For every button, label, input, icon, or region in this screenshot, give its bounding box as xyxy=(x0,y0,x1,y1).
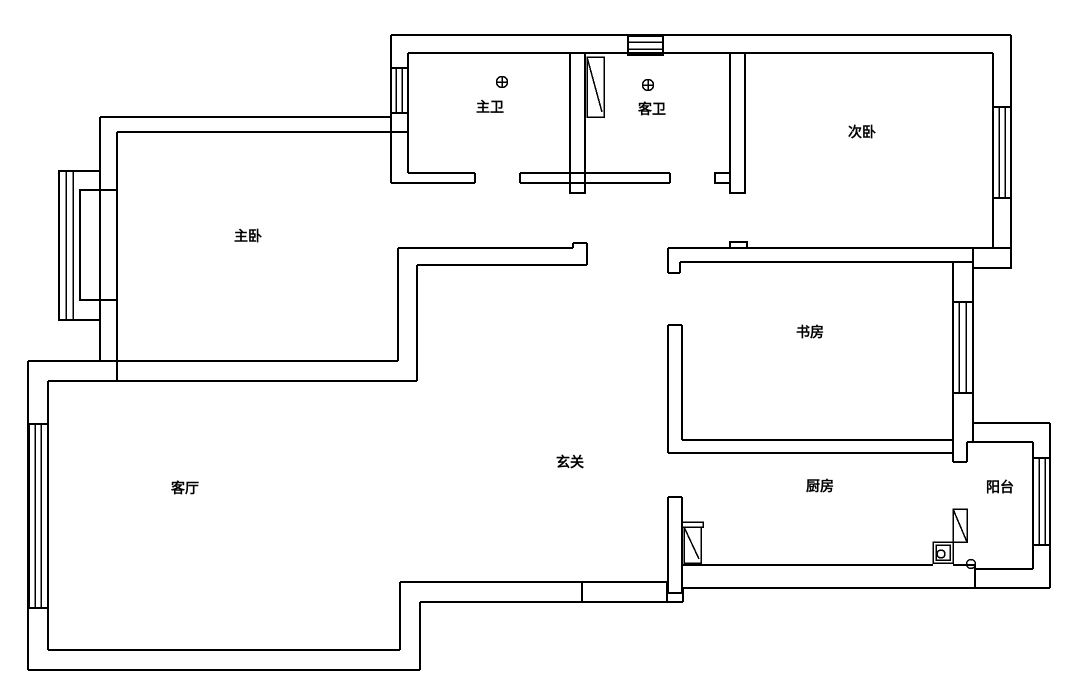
room-label-second-bedroom: 次卧 xyxy=(848,124,876,141)
wall-block xyxy=(730,53,745,193)
room-label-living-room: 客厅 xyxy=(170,480,199,497)
room-label-guest-bathroom: 客卫 xyxy=(637,101,666,118)
room-label-study: 书房 xyxy=(796,324,824,341)
room-label-balcony: 阳台 xyxy=(986,479,1014,496)
guest-bath-door-leaf-swing-line xyxy=(587,57,602,112)
wall-block xyxy=(973,248,1011,268)
floor-plan-page: 主卧主卫客卫次卧书房客厅玄关厨房阳台 xyxy=(0,0,1070,698)
room-label-entry-hall: 玄关 xyxy=(556,454,584,471)
wall-block xyxy=(715,173,730,183)
room-label-kitchen: 厨房 xyxy=(806,478,834,495)
balcony-door-leaf-swing-line xyxy=(953,509,967,542)
bay-window-sill-frame xyxy=(80,190,117,300)
living-room-window-frame xyxy=(29,424,48,608)
wall-block xyxy=(730,242,747,248)
master-bath-window-frame xyxy=(391,68,408,113)
kitchen-door-leaf-swing-line xyxy=(684,527,699,559)
room-label-master-bathroom: 主卫 xyxy=(476,99,504,116)
kitchen-sink-drain-icon xyxy=(937,550,945,558)
room-label-master-bedroom: 主卧 xyxy=(234,228,262,245)
study-window-frame xyxy=(953,302,973,393)
floor-plan-svg: 主卧主卫客卫次卧书房客厅玄关厨房阳台 xyxy=(0,0,1070,698)
balcony-window-frame xyxy=(1033,458,1050,545)
second-bedroom-window-frame xyxy=(993,107,1011,198)
